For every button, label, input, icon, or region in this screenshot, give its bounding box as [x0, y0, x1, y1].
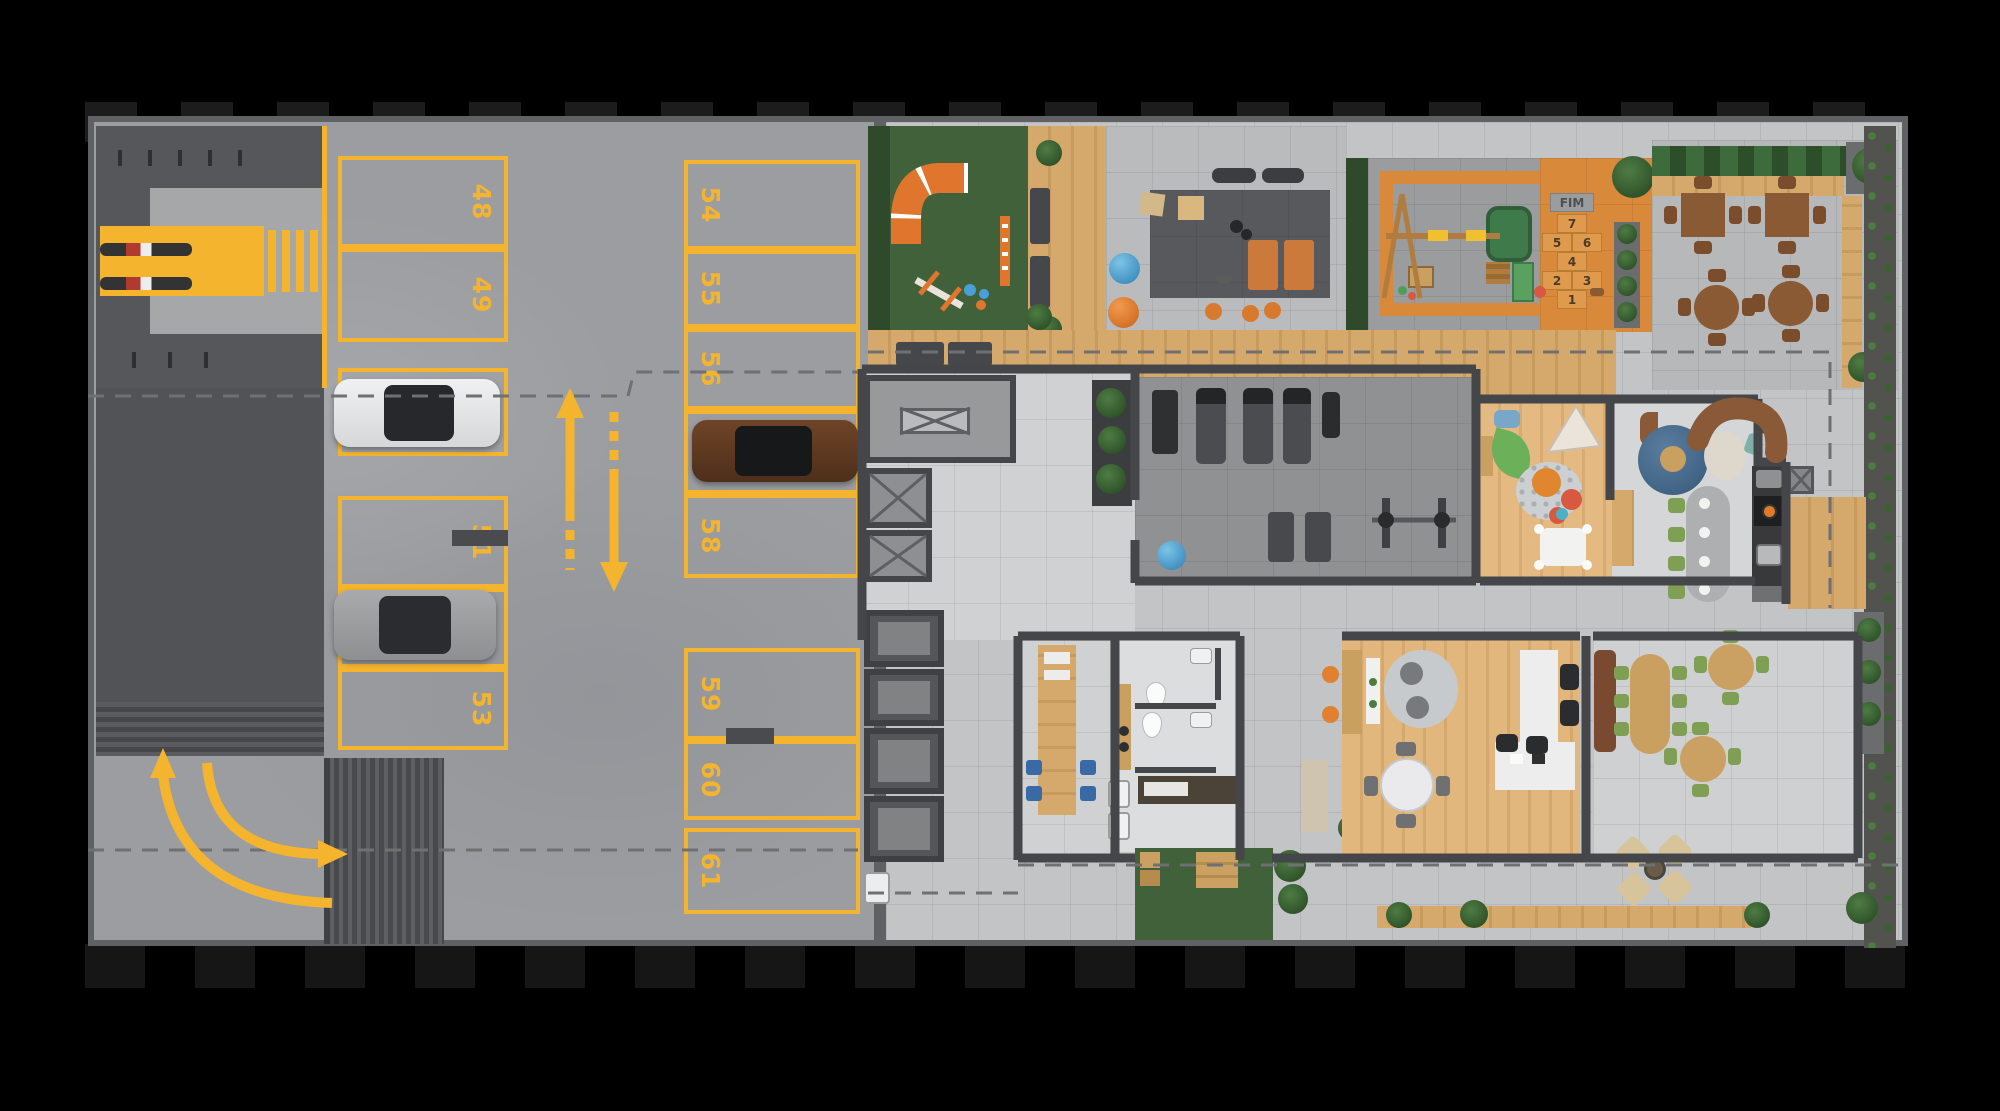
stool-blue: [1080, 786, 1096, 801]
plant-small: [1369, 700, 1377, 708]
bicycle: [100, 277, 192, 290]
bathrooms: [1115, 640, 1240, 852]
round-table: [1694, 285, 1739, 330]
car-brown: [692, 420, 858, 482]
plant-small: [1369, 678, 1377, 686]
wall-sink: [1190, 712, 1212, 728]
coffee-machine: [1756, 470, 1782, 488]
exercise-ball-blue: [1109, 253, 1140, 284]
ramp-divider-wall: [324, 758, 330, 944]
parking-space-48: 48: [338, 156, 508, 248]
exercise-ball-orange: [1108, 297, 1139, 328]
table-tray: [1044, 670, 1070, 680]
bar-stool: [1668, 556, 1685, 571]
chair-green: [1614, 666, 1629, 680]
parking-space-label: 49: [467, 277, 496, 314]
bar-counter: [1342, 650, 1362, 734]
deck-bench: [896, 342, 944, 366]
parking-space-59: 59: [684, 648, 860, 740]
parking-space-label: 60: [696, 762, 725, 799]
bookshelf: [1481, 436, 1493, 476]
treadmill: [1283, 388, 1311, 464]
chair-green: [1756, 656, 1769, 673]
chair-green: [1672, 694, 1687, 708]
bike-rack: [238, 150, 242, 166]
storage-cell: [864, 796, 944, 862]
daybed-tray: [1660, 446, 1686, 472]
kettlebell: [1241, 229, 1252, 240]
wood-steps: [1196, 852, 1238, 888]
pouf-orange: [1532, 468, 1561, 497]
car-cabin: [735, 426, 811, 476]
plant: [1096, 388, 1126, 418]
parking-space-55: 55: [684, 250, 860, 328]
wood-cube-seat: [1139, 191, 1166, 216]
service-dark-zone: [96, 388, 324, 702]
office-chair: [1560, 700, 1579, 726]
hedge-top: [1652, 146, 1850, 176]
shrub: [1857, 702, 1881, 726]
treadmill: [1243, 388, 1273, 464]
play-tower: [1486, 206, 1532, 262]
parking-space-56: 56: [684, 328, 860, 410]
parking-space-label: 59: [696, 676, 725, 713]
deck-bench: [1030, 256, 1050, 308]
plant: [1098, 426, 1126, 454]
place-setting: [1699, 527, 1710, 538]
laptop: [1532, 754, 1545, 764]
kids-table: [1540, 528, 1586, 566]
leather-sofa: [1594, 650, 1616, 752]
parking-space-label: 61: [696, 853, 725, 890]
storage-floor: [878, 740, 930, 782]
chair: [1778, 176, 1796, 189]
chair-green: [1614, 722, 1629, 736]
pouf-orange: [1205, 303, 1222, 320]
round-table-wood: [1708, 644, 1754, 690]
chair-gray: [1396, 742, 1416, 756]
multi-gym-machine: [1152, 390, 1178, 454]
bike-rack: [204, 352, 208, 368]
floor-plan: 48 49 51 53 54 55 56 58 59 60 61: [0, 0, 2000, 1111]
chair-green: [1672, 666, 1687, 680]
parking-space-54: 54: [684, 160, 860, 250]
wood-step: [1140, 870, 1160, 886]
palm-plant: [1274, 850, 1306, 882]
sink: [1108, 812, 1130, 840]
coworking-desk: [1520, 650, 1558, 744]
toy-ball: [1408, 292, 1416, 300]
plant: [1096, 464, 1126, 494]
service-duct: [1788, 466, 1814, 494]
bicycle: [100, 243, 192, 256]
office-chair: [1560, 664, 1579, 690]
bush: [1846, 892, 1878, 924]
deck-bench: [1030, 188, 1050, 244]
bike-crosswalk-stripes: [268, 230, 320, 292]
exercise-mat: [1284, 240, 1314, 290]
storage-floor: [878, 681, 930, 714]
kids-lounge-chair: [1494, 410, 1520, 428]
toy-starfish: [1556, 508, 1568, 520]
palm-plant: [1278, 884, 1308, 914]
square-table: [1681, 193, 1725, 237]
shrub: [1617, 224, 1637, 244]
chair-green: [1728, 748, 1741, 765]
hopscotch-cell-6: 6: [1572, 233, 1602, 252]
bush: [1026, 304, 1052, 330]
vessel-sink: [1119, 726, 1129, 736]
stool-blue: [1026, 786, 1042, 801]
car-cabin: [379, 596, 450, 653]
wall-sink: [1190, 648, 1212, 664]
parking-space-label: 56: [696, 351, 725, 388]
hopscotch-finish-label: FIM: [1560, 196, 1585, 210]
chair-green: [1694, 656, 1707, 673]
kitchen-cabinet: [1752, 586, 1786, 602]
parking-space-label: 48: [467, 184, 496, 221]
parking-space-49: 49: [338, 248, 508, 342]
shrub: [1617, 276, 1637, 296]
paper: [1510, 754, 1523, 764]
bush: [1386, 902, 1412, 928]
bike-rack: [208, 150, 212, 166]
parking-space-label: 58: [696, 518, 725, 555]
pouf-red: [1561, 489, 1582, 510]
pouf-gray: [1406, 696, 1429, 719]
kids-chair: [1582, 560, 1592, 570]
storage-cell: [864, 669, 944, 726]
bar-stool: [1668, 498, 1685, 513]
dumbbell: [1216, 276, 1232, 283]
entry-ramp: [330, 758, 444, 944]
bike-rack: [168, 352, 172, 368]
stool-blue: [1026, 760, 1042, 775]
treadmill: [1196, 388, 1226, 464]
yellow-boundary-line: [322, 126, 327, 388]
wheel-stop: [452, 530, 508, 546]
bike-rack: [178, 150, 182, 166]
weight-bench: [1305, 512, 1331, 562]
pouf-orange: [1242, 305, 1259, 322]
round-table-wood: [1680, 736, 1726, 782]
chair-green: [1672, 722, 1687, 736]
stool-blue: [1080, 760, 1096, 775]
chair: [1752, 294, 1765, 312]
exercise-ball-blue: [1157, 541, 1186, 570]
marble-table: [1380, 758, 1434, 812]
playground-turf: [890, 126, 1028, 332]
service-gate: [864, 872, 890, 904]
kids-chair: [1534, 524, 1544, 534]
counter-tray: [1144, 782, 1188, 796]
bush: [1744, 902, 1770, 928]
head-cushion: [1212, 168, 1256, 183]
chair-green: [1722, 692, 1739, 705]
chair: [1778, 241, 1796, 254]
chair: [1678, 298, 1691, 316]
shrub: [1617, 250, 1637, 270]
storage-floor: [878, 808, 930, 850]
car-cabin: [384, 385, 454, 441]
office-chair: [1496, 734, 1518, 752]
parking-space-label: 53: [467, 691, 496, 728]
office-chair: [1526, 736, 1548, 754]
hopscotch-cell-5: 5: [1542, 233, 1572, 252]
bike-rack: [132, 352, 136, 368]
bar-stool: [1668, 527, 1685, 542]
chair: [1708, 333, 1726, 346]
wood-step: [1140, 852, 1160, 868]
stool-orange: [1322, 706, 1339, 723]
parking-space-60: 60: [684, 740, 860, 820]
chair: [1782, 329, 1800, 342]
pouf-gray: [1400, 662, 1423, 685]
chair-green: [1692, 784, 1709, 797]
shrub: [1857, 660, 1881, 684]
hopscotch-cell-7: 7: [1557, 214, 1587, 233]
place-setting: [1699, 498, 1710, 509]
fire-pit-table: [1644, 858, 1666, 880]
round-table: [1768, 281, 1813, 326]
frying-pan: [1762, 504, 1777, 519]
chair: [1729, 206, 1742, 224]
pouf-cream: [1704, 432, 1746, 480]
elevator: [864, 468, 932, 528]
chair-green: [1692, 722, 1709, 735]
chair-gray: [1436, 776, 1450, 796]
chair: [1708, 269, 1726, 282]
car-white: [334, 379, 500, 447]
kitchen-sink: [1756, 544, 1782, 566]
bike-rack: [118, 150, 122, 166]
console-table: [1366, 658, 1380, 724]
chair: [1664, 206, 1677, 224]
car-gray: [334, 590, 496, 660]
parking-space-53: 53: [338, 668, 508, 750]
chair-green: [1664, 748, 1677, 765]
hedge-divider: [1346, 158, 1368, 332]
plant: [1754, 408, 1780, 434]
deck-right: [1788, 497, 1866, 609]
chair: [1694, 241, 1712, 254]
hopscotch-cell-2: 2: [1542, 271, 1572, 290]
elevator: [864, 530, 932, 582]
storage-floor: [878, 622, 930, 655]
parking-space-label: 54: [696, 187, 725, 224]
wheel-stop: [726, 728, 774, 744]
deck-bench: [948, 342, 992, 366]
chair: [1782, 265, 1800, 278]
parking-space-61: 61: [684, 828, 860, 914]
parking-space-58: 58: [684, 494, 860, 578]
weight-bench: [1268, 512, 1294, 562]
lounge-deck: [1612, 490, 1634, 566]
wood-cube-seat: [1178, 196, 1204, 220]
chair: [1813, 206, 1826, 224]
tower-slide: [1512, 262, 1534, 302]
chair: [1816, 294, 1829, 312]
toy-ball: [1398, 286, 1407, 295]
exercise-mat: [1248, 240, 1278, 290]
bike-rack: [148, 150, 152, 166]
head-cushion: [1262, 168, 1304, 183]
parking-space-label: 55: [696, 271, 725, 308]
kids-chair: [1582, 524, 1592, 534]
perimeter-planting: [1864, 126, 1896, 948]
shrub: [1617, 302, 1637, 322]
shrub: [1857, 618, 1881, 642]
chair-gray: [1396, 814, 1416, 828]
toy-box: [1408, 266, 1434, 288]
hopscotch-cell-1: 1: [1557, 290, 1587, 309]
toy: [1534, 286, 1546, 298]
toy: [1590, 288, 1604, 296]
storage-cell: [864, 728, 944, 794]
chair-gray: [1364, 776, 1378, 796]
hopscotch-cell-4: 4: [1557, 252, 1587, 271]
chair-green: [1614, 694, 1629, 708]
ramp-horizontal: [96, 702, 324, 756]
square-table: [1765, 193, 1809, 237]
kids-chair: [1534, 560, 1544, 570]
bar-stool: [1668, 584, 1685, 599]
hopscotch-finish-cell: FIM: [1550, 193, 1594, 212]
stool-orange: [1322, 666, 1339, 683]
place-setting: [1699, 556, 1710, 567]
stair-run: [900, 408, 970, 434]
sink: [1108, 780, 1130, 808]
pouf-orange: [1264, 302, 1281, 319]
perimeter-bench: [1377, 906, 1751, 928]
place-setting: [1699, 584, 1710, 595]
vessel-sink: [1119, 742, 1129, 752]
table-tray: [1044, 652, 1070, 664]
ceiling-structure-bottom: [85, 944, 1907, 988]
storage-cell: [864, 610, 944, 667]
chair-green: [1722, 630, 1739, 643]
bush: [1460, 900, 1488, 928]
tree: [1612, 156, 1654, 198]
chair: [1694, 176, 1712, 189]
spin-bike: [1322, 392, 1340, 438]
tower-steps: [1486, 262, 1510, 284]
oval-table: [1630, 654, 1670, 754]
chair: [1748, 206, 1761, 224]
bush: [1036, 140, 1062, 166]
storage-cabinet: [1302, 760, 1328, 832]
